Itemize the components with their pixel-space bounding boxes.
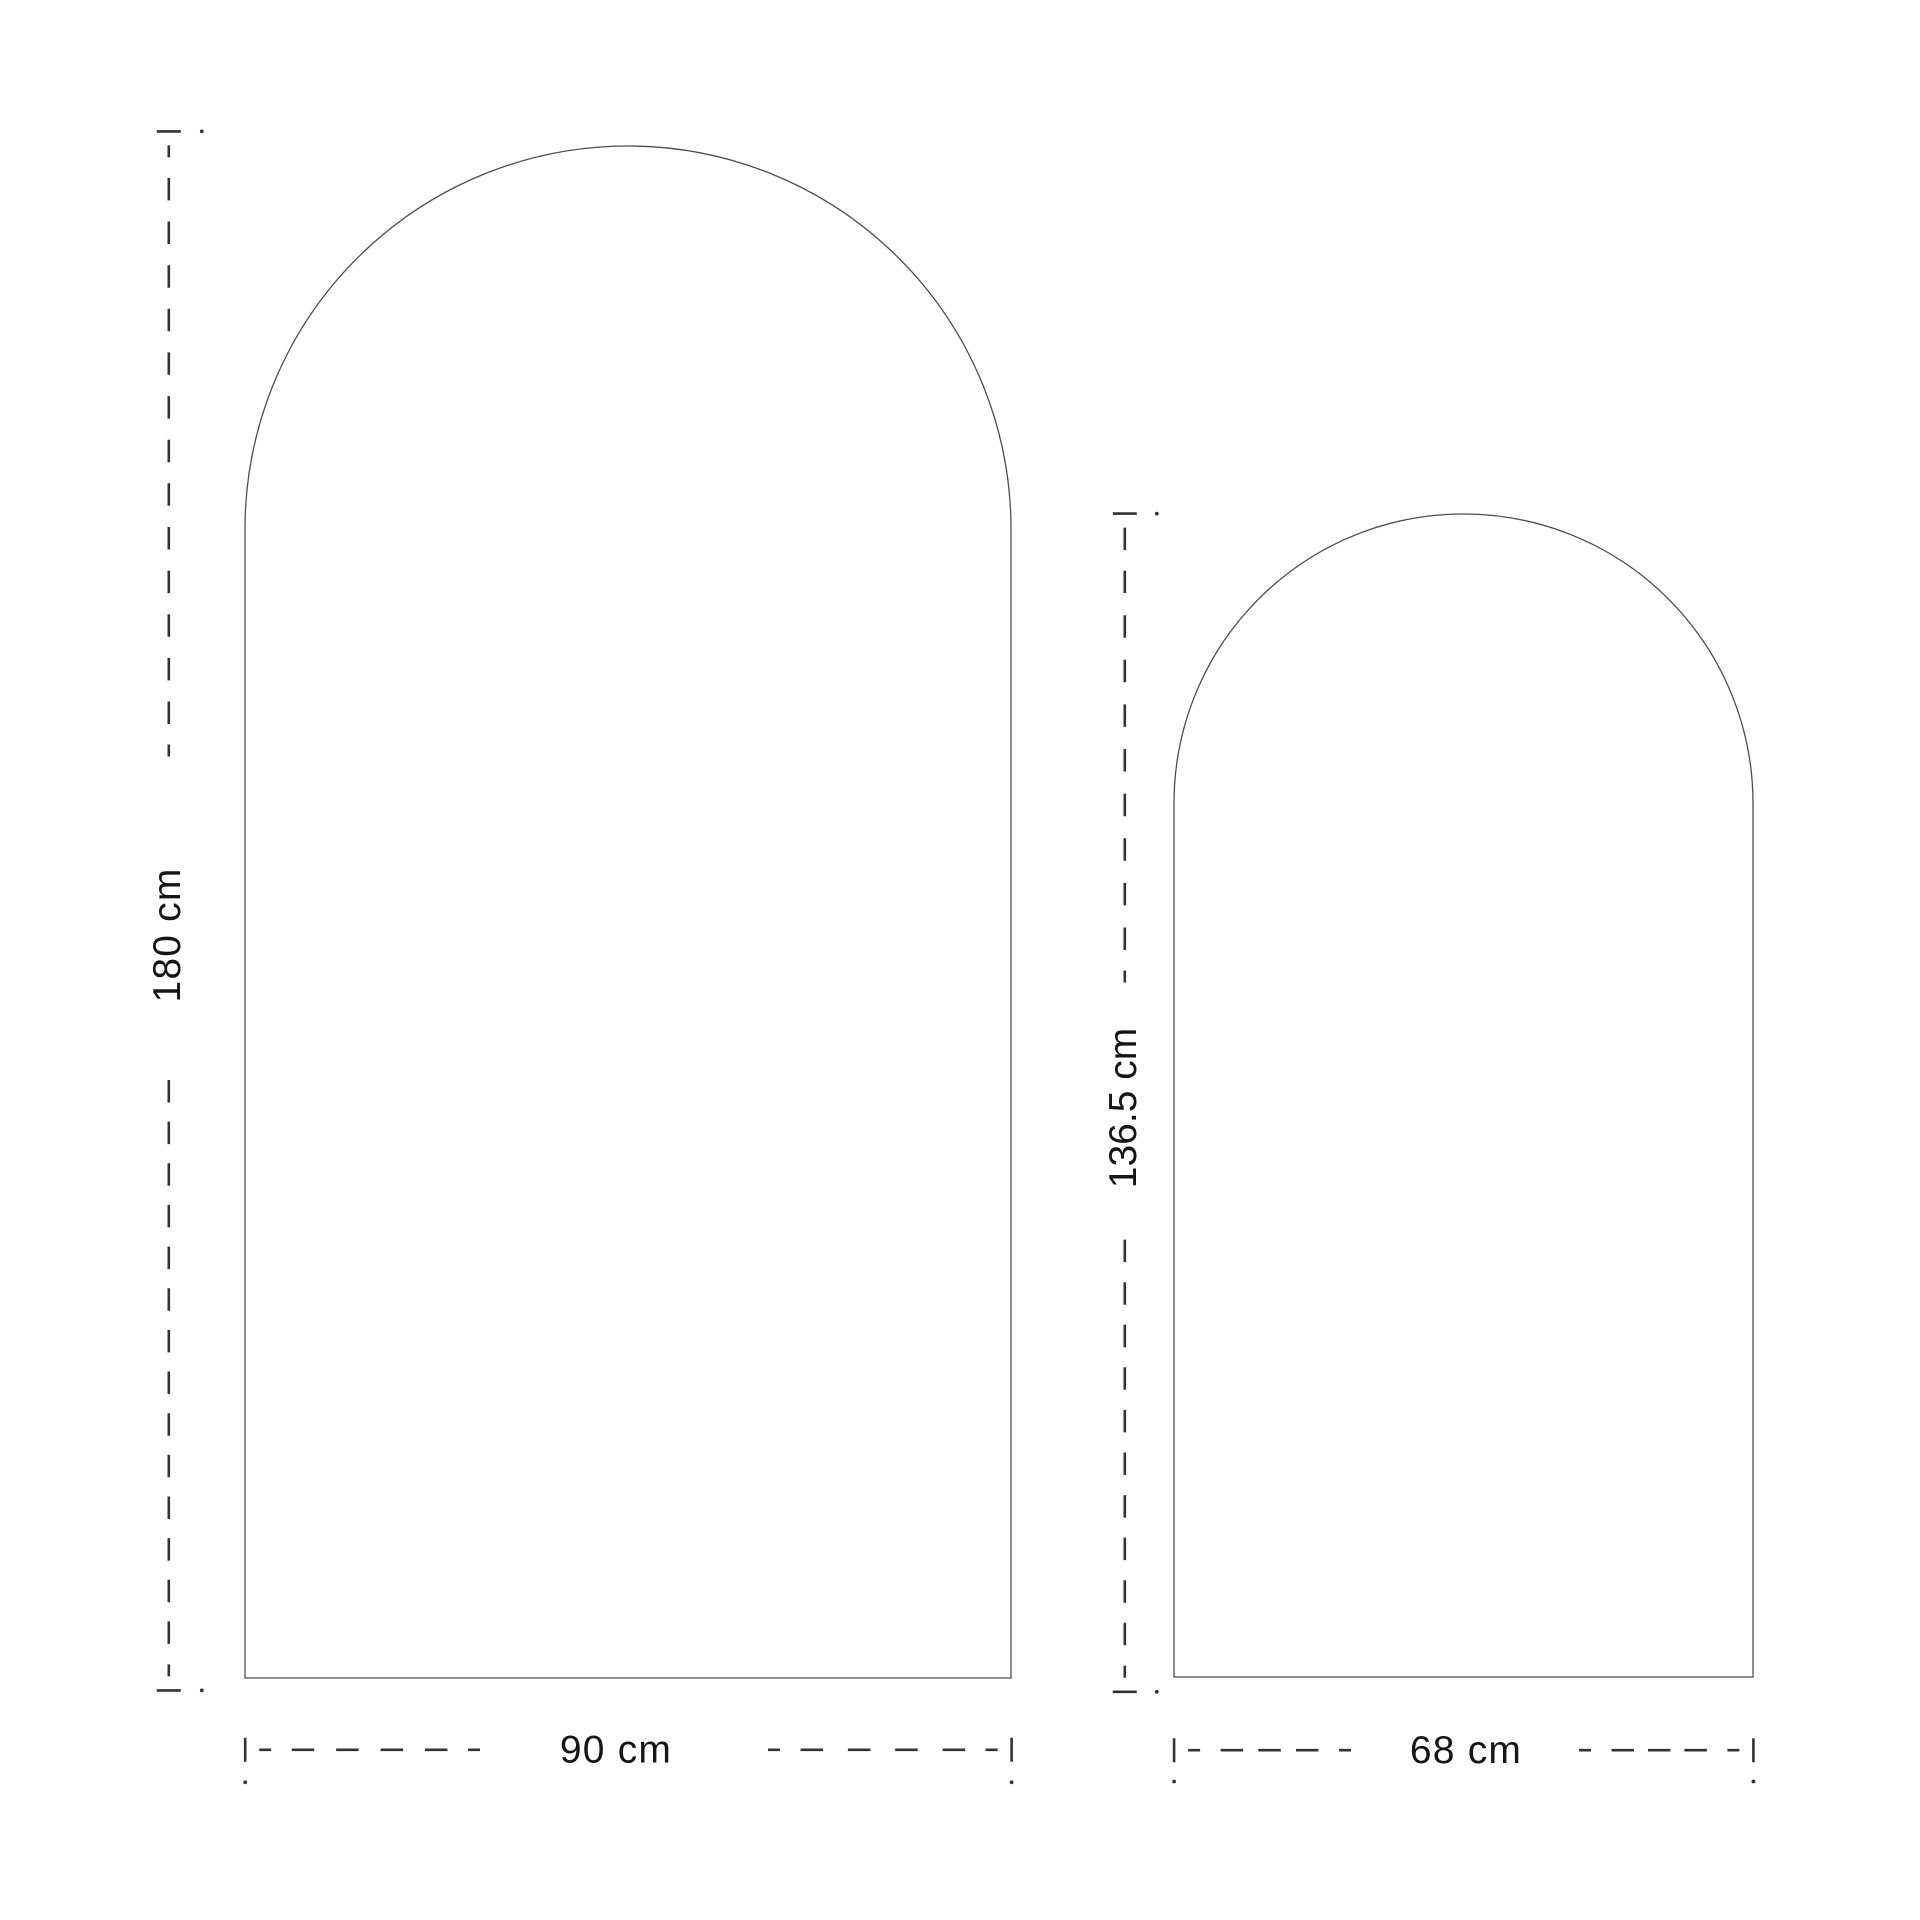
svg-text:90 cm: 90 cm <box>560 1729 672 1772</box>
svg-text:68 cm: 68 cm <box>1410 1729 1522 1772</box>
svg-text:180 cm: 180 cm <box>146 867 189 1002</box>
svg-text:136.5 cm: 136.5 cm <box>1102 1028 1145 1188</box>
